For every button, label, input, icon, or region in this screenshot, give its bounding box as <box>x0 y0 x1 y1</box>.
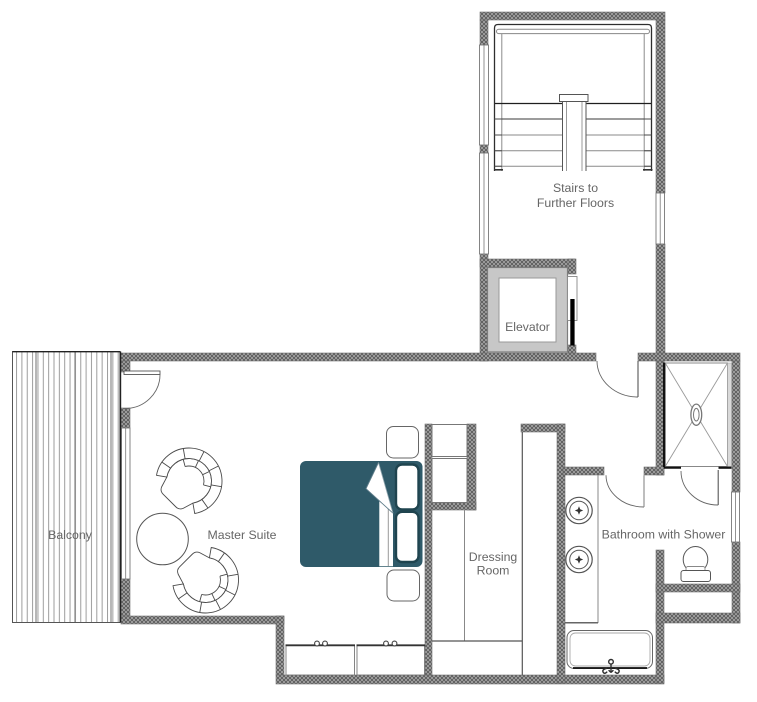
svg-text:Stairs to: Stairs to <box>553 181 598 195</box>
svg-text:Dressing: Dressing <box>469 550 518 564</box>
svg-text:Elevator: Elevator <box>505 320 550 334</box>
svg-text:Bathroom with Shower: Bathroom with Shower <box>602 528 726 542</box>
svg-text:Master Suite: Master Suite <box>207 528 276 542</box>
svg-text:Room: Room <box>477 564 510 578</box>
svg-text:Balcony: Balcony <box>48 528 93 542</box>
svg-text:Further Floors: Further Floors <box>537 196 614 210</box>
